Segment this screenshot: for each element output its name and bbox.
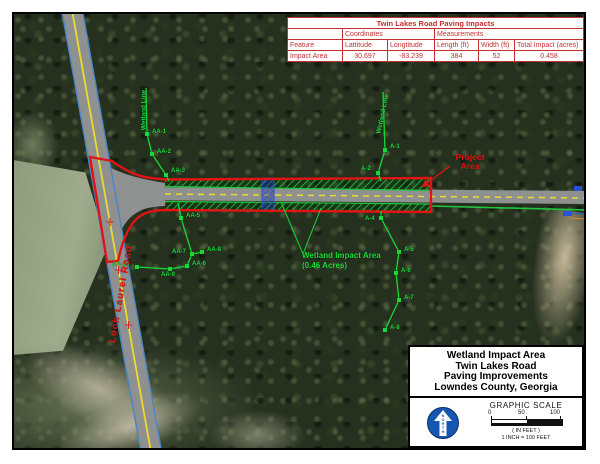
wetland-flag-dot xyxy=(394,271,398,275)
map-title-line1: Wetland Impact Area xyxy=(412,351,580,362)
table-header-length: Length (ft) xyxy=(435,40,479,51)
table-title: Twin Lakes Road Paving Impacts xyxy=(288,18,584,29)
scale-bar-segment xyxy=(527,420,562,425)
table-cell-length: 384 xyxy=(435,51,479,62)
scale-tick-100: 100 xyxy=(550,410,560,416)
wetland-flag-dot xyxy=(376,171,380,175)
table-header-longitude: Longtitude xyxy=(388,40,435,51)
scale-bar-segment xyxy=(492,420,527,425)
wetland-flag-dot xyxy=(164,173,168,177)
wetland-flag-dot xyxy=(145,132,149,136)
wetland-flag-dot xyxy=(179,216,183,220)
wetland-flag-label: A-5 xyxy=(404,247,414,253)
wetland-impact-area-label-line1: Wetland Impact Area xyxy=(302,251,381,261)
wetland-flag-label: AA-8 xyxy=(207,247,221,253)
map-title-line3: Paving Improvements xyxy=(412,372,580,383)
table-empty-cell xyxy=(288,29,343,40)
wetland-flag-label: AA-5 xyxy=(186,213,200,219)
culvert-crossing xyxy=(262,178,274,211)
wetland-impact-area-label: Wetland Impact Area (0.46 Acres) xyxy=(302,251,381,271)
map-title-line4: Lowndes County, Georgia xyxy=(412,383,580,394)
table-header-feature: Feature xyxy=(288,40,343,51)
table-cell-longitude: -83.239 xyxy=(388,51,435,62)
wetland-flag-dot xyxy=(383,328,387,332)
wetland-flag-dot xyxy=(150,152,154,156)
wetland-flag-dot xyxy=(185,264,189,268)
title-block-footer: NORTH GRAPHIC SCALE 0 50 100 xyxy=(410,398,582,448)
wetland-flag-dot xyxy=(200,250,204,254)
wetland-flag-label: AA-7 xyxy=(172,249,186,255)
wetland-flag-label: A-1 xyxy=(390,144,400,150)
wetland-flag-dot xyxy=(135,265,139,269)
table-cell-total-impact: 0.458 xyxy=(515,51,584,62)
wetland-flag-dot xyxy=(168,267,172,271)
table-cell-width: 52 xyxy=(479,51,515,62)
scale-units-label: ( IN FEET ) xyxy=(474,428,578,434)
wetland-flag-label: A-8 xyxy=(390,325,400,331)
wetland-flag-label: AA-1 xyxy=(152,129,166,135)
north-arrow-label: NORTH xyxy=(441,414,445,434)
graphic-scale-heading: GRAPHIC SCALE xyxy=(474,401,578,410)
north-arrow-icon: NORTH xyxy=(426,406,460,440)
aerial-map: AA-1AA-2AA-3AA-5AA-7AA-8AA-6AA-9AA-10A-1… xyxy=(12,12,586,450)
wetland-flag-label: AA-3 xyxy=(171,168,185,174)
wetland-flag-dot xyxy=(397,250,401,254)
graphic-scale: GRAPHIC SCALE 0 50 100 xyxy=(474,401,578,441)
wetland-flag-label: A-4 xyxy=(365,216,375,222)
table-cell-latitude: 30.697 xyxy=(343,51,388,62)
table-group-coordinates: Coordinates xyxy=(343,29,435,40)
wetland-flag-label: A-2 xyxy=(361,166,371,172)
wetland-flag-label: A-6 xyxy=(401,268,411,274)
scale-tick-50: 50 xyxy=(518,410,525,416)
scale-bar-wrap xyxy=(474,417,578,426)
paving-impacts-table: Twin Lakes Road Paving Impacts Coordinat… xyxy=(287,17,584,62)
project-area-label: Project Area xyxy=(446,153,494,171)
table-cell-feature: Impact Area xyxy=(288,51,343,62)
wetland-impact-area-label-line2: (0.46 Acres) xyxy=(302,261,381,271)
table-row: Impact Area 30.697 -83.239 384 52 0.458 xyxy=(288,51,584,62)
map-title: Wetland Impact Area Twin Lakes Road Pavi… xyxy=(410,347,582,398)
wetland-flag-label: AA-6 xyxy=(192,261,206,267)
wetland-flag-dot xyxy=(383,148,387,152)
wetland-flag-dot xyxy=(397,298,401,302)
wetland-flag-label: A-7 xyxy=(404,295,414,301)
table-header-width: Width (ft) xyxy=(479,40,515,51)
scale-ratio-label: 1 INCH = 100 FEET xyxy=(474,435,578,441)
table-header-total-impact: Total Impact (acres) xyxy=(515,40,584,51)
title-block: Wetland Impact Area Twin Lakes Road Pavi… xyxy=(408,345,584,448)
wetland-flag-label: AA-2 xyxy=(157,149,171,155)
table-group-measurements: Measurements xyxy=(435,29,584,40)
wetland-edge-line-east xyxy=(431,206,584,210)
map-exhibit-page: AA-1AA-2AA-3AA-5AA-7AA-8AA-6AA-9AA-10A-1… xyxy=(0,0,600,464)
table-header-latitude: Lattitude xyxy=(343,40,388,51)
wetland-flag-dot xyxy=(190,252,194,256)
scale-bar xyxy=(491,419,563,426)
wetland-flag-label: AA-9 xyxy=(161,272,175,278)
wetland-line-label-left: Wetland Line xyxy=(141,90,148,130)
wetland-flag-dot xyxy=(379,216,383,220)
